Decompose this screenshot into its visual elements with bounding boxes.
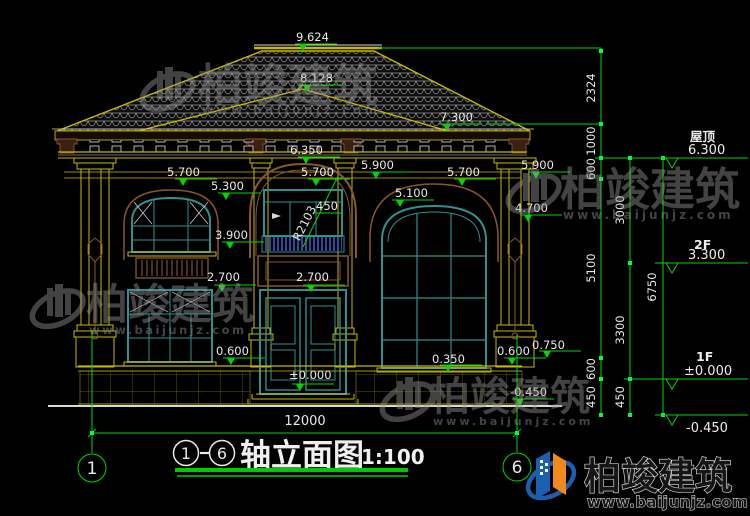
logo-brand-text: 柏竣建筑: [584, 455, 732, 498]
level-value: 6.300: [688, 143, 725, 158]
level-value: -0.450: [686, 421, 728, 436]
level-name: 屋顶: [690, 129, 716, 144]
cad-elevation-drawing: 9.624 8.128 7.300 6.350 5.700 5.300 5.70…: [0, 0, 750, 516]
level-value: ±0.000: [684, 364, 732, 379]
svg-text:1: 1: [87, 459, 98, 479]
title-scale: 1:100: [361, 445, 425, 469]
watermark-bottom: 柏竣建筑 www.baijunjz.com: [377, 374, 593, 428]
left-window-2f: [124, 190, 218, 260]
level-name: 1F: [696, 349, 713, 364]
logo-url-text: www.baijunjz.com: [587, 493, 748, 511]
right-tall-window: [370, 184, 498, 372]
casement-arrow-icon: [272, 213, 281, 219]
dim-label: 0.600: [216, 344, 249, 358]
chain-dim: 5100: [584, 253, 598, 282]
title-axis-to: 6: [217, 444, 227, 463]
pier-ornament: [508, 238, 522, 339]
dim-label: 9.624: [296, 30, 329, 44]
svg-text:www.baijunjz.com: www.baijunjz.com: [89, 323, 246, 337]
svg-text:www.baijunjz.com: www.baijunjz.com: [433, 415, 593, 428]
dim-label: 0.750: [532, 338, 565, 352]
dim-label: 5.700: [447, 165, 480, 179]
railing-height-label: 450: [316, 199, 338, 213]
dim-label: 5.700: [301, 165, 334, 179]
dim-label: 7.300: [440, 110, 473, 124]
company-logo: 柏竣建筑 www.baijunjz.com: [522, 451, 748, 511]
chain-dim: 2324: [584, 73, 598, 102]
chain-dim: 1000: [584, 126, 598, 155]
title-underline: [175, 468, 408, 472]
title-axis-from: 1: [181, 444, 191, 463]
svg-text:柏竣建筑: 柏竣建筑: [86, 280, 254, 329]
dim-label: 5.100: [395, 186, 428, 200]
dim-label: 6.350: [290, 143, 323, 157]
entry-steps: [248, 394, 358, 404]
chain-dim: 450: [613, 386, 627, 408]
dim-label: 5.700: [167, 165, 200, 179]
watermark-left: 柏竣建筑 www.baijunjz.com: [27, 280, 254, 337]
overall-width-label: 12000: [284, 414, 325, 429]
dim-label: 3.900: [215, 228, 248, 242]
logo-building-orange-icon: [553, 453, 566, 495]
drawing-title: 1 6 轴立面图 1:100: [174, 438, 425, 476]
chain-dim: 3300: [613, 315, 627, 344]
chain-dim: 6750: [645, 272, 659, 301]
axis-bubble-1: 1: [78, 454, 106, 482]
svg-text:6: 6: [512, 458, 523, 478]
svg-text:www.baijunjz.com: www.baijunjz.com: [202, 103, 381, 117]
dim-label: 5.300: [211, 179, 244, 193]
svg-text:www.baijunjz.com: www.baijunjz.com: [563, 208, 734, 222]
dim-label: 0.600: [497, 344, 530, 358]
drawing-canvas: 9.624 8.128 7.300 6.350 5.700 5.300 5.70…: [0, 0, 750, 516]
left-spandrel-panel: [136, 258, 208, 278]
dim-label: 0.350: [432, 352, 465, 366]
dim-label: ±0.000: [289, 368, 332, 382]
dim-label: 5.900: [361, 158, 394, 172]
level-value: 3.300: [688, 248, 725, 263]
axis-bubble-6: 6: [503, 453, 531, 481]
svg-text:柏竣建筑: 柏竣建筑: [430, 374, 590, 420]
dim-label: 2.700: [296, 270, 329, 284]
